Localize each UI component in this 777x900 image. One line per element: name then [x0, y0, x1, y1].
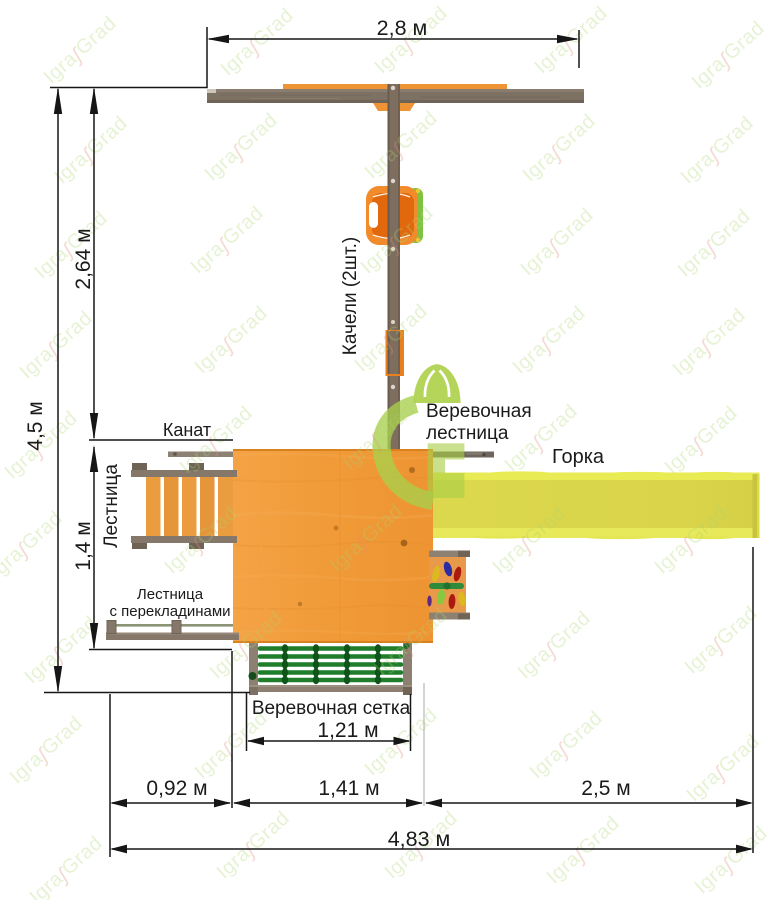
svg-text:1,21 м: 1,21 м [317, 719, 378, 742]
svg-text:с перекладинами: с перекладинами [109, 603, 230, 620]
svg-text:Горка: Горка [552, 446, 605, 468]
svg-text:Лестница: Лестница [101, 464, 122, 548]
svg-text:2,64 м: 2,64 м [72, 228, 95, 289]
svg-text:0,92 м: 0,92 м [146, 777, 207, 800]
svg-text:Канат: Канат [163, 420, 211, 440]
svg-text:Лестница: Лестница [137, 586, 204, 603]
svg-text:Веревочная: Веревочная [426, 401, 532, 422]
svg-text:Качели (2шт.): Качели (2шт.) [340, 237, 361, 355]
svg-text:2,8 м: 2,8 м [377, 16, 428, 40]
svg-text:лестница: лестница [426, 423, 509, 444]
svg-text:4,83 м: 4,83 м [388, 827, 451, 851]
svg-text:2,5 м: 2,5 м [581, 777, 630, 800]
svg-text:Веревочная сетка: Веревочная сетка [252, 698, 411, 719]
svg-text:4,5 м: 4,5 м [24, 401, 47, 450]
svg-text:1,41 м: 1,41 м [318, 777, 379, 800]
svg-text:1,4 м: 1,4 м [72, 521, 95, 570]
